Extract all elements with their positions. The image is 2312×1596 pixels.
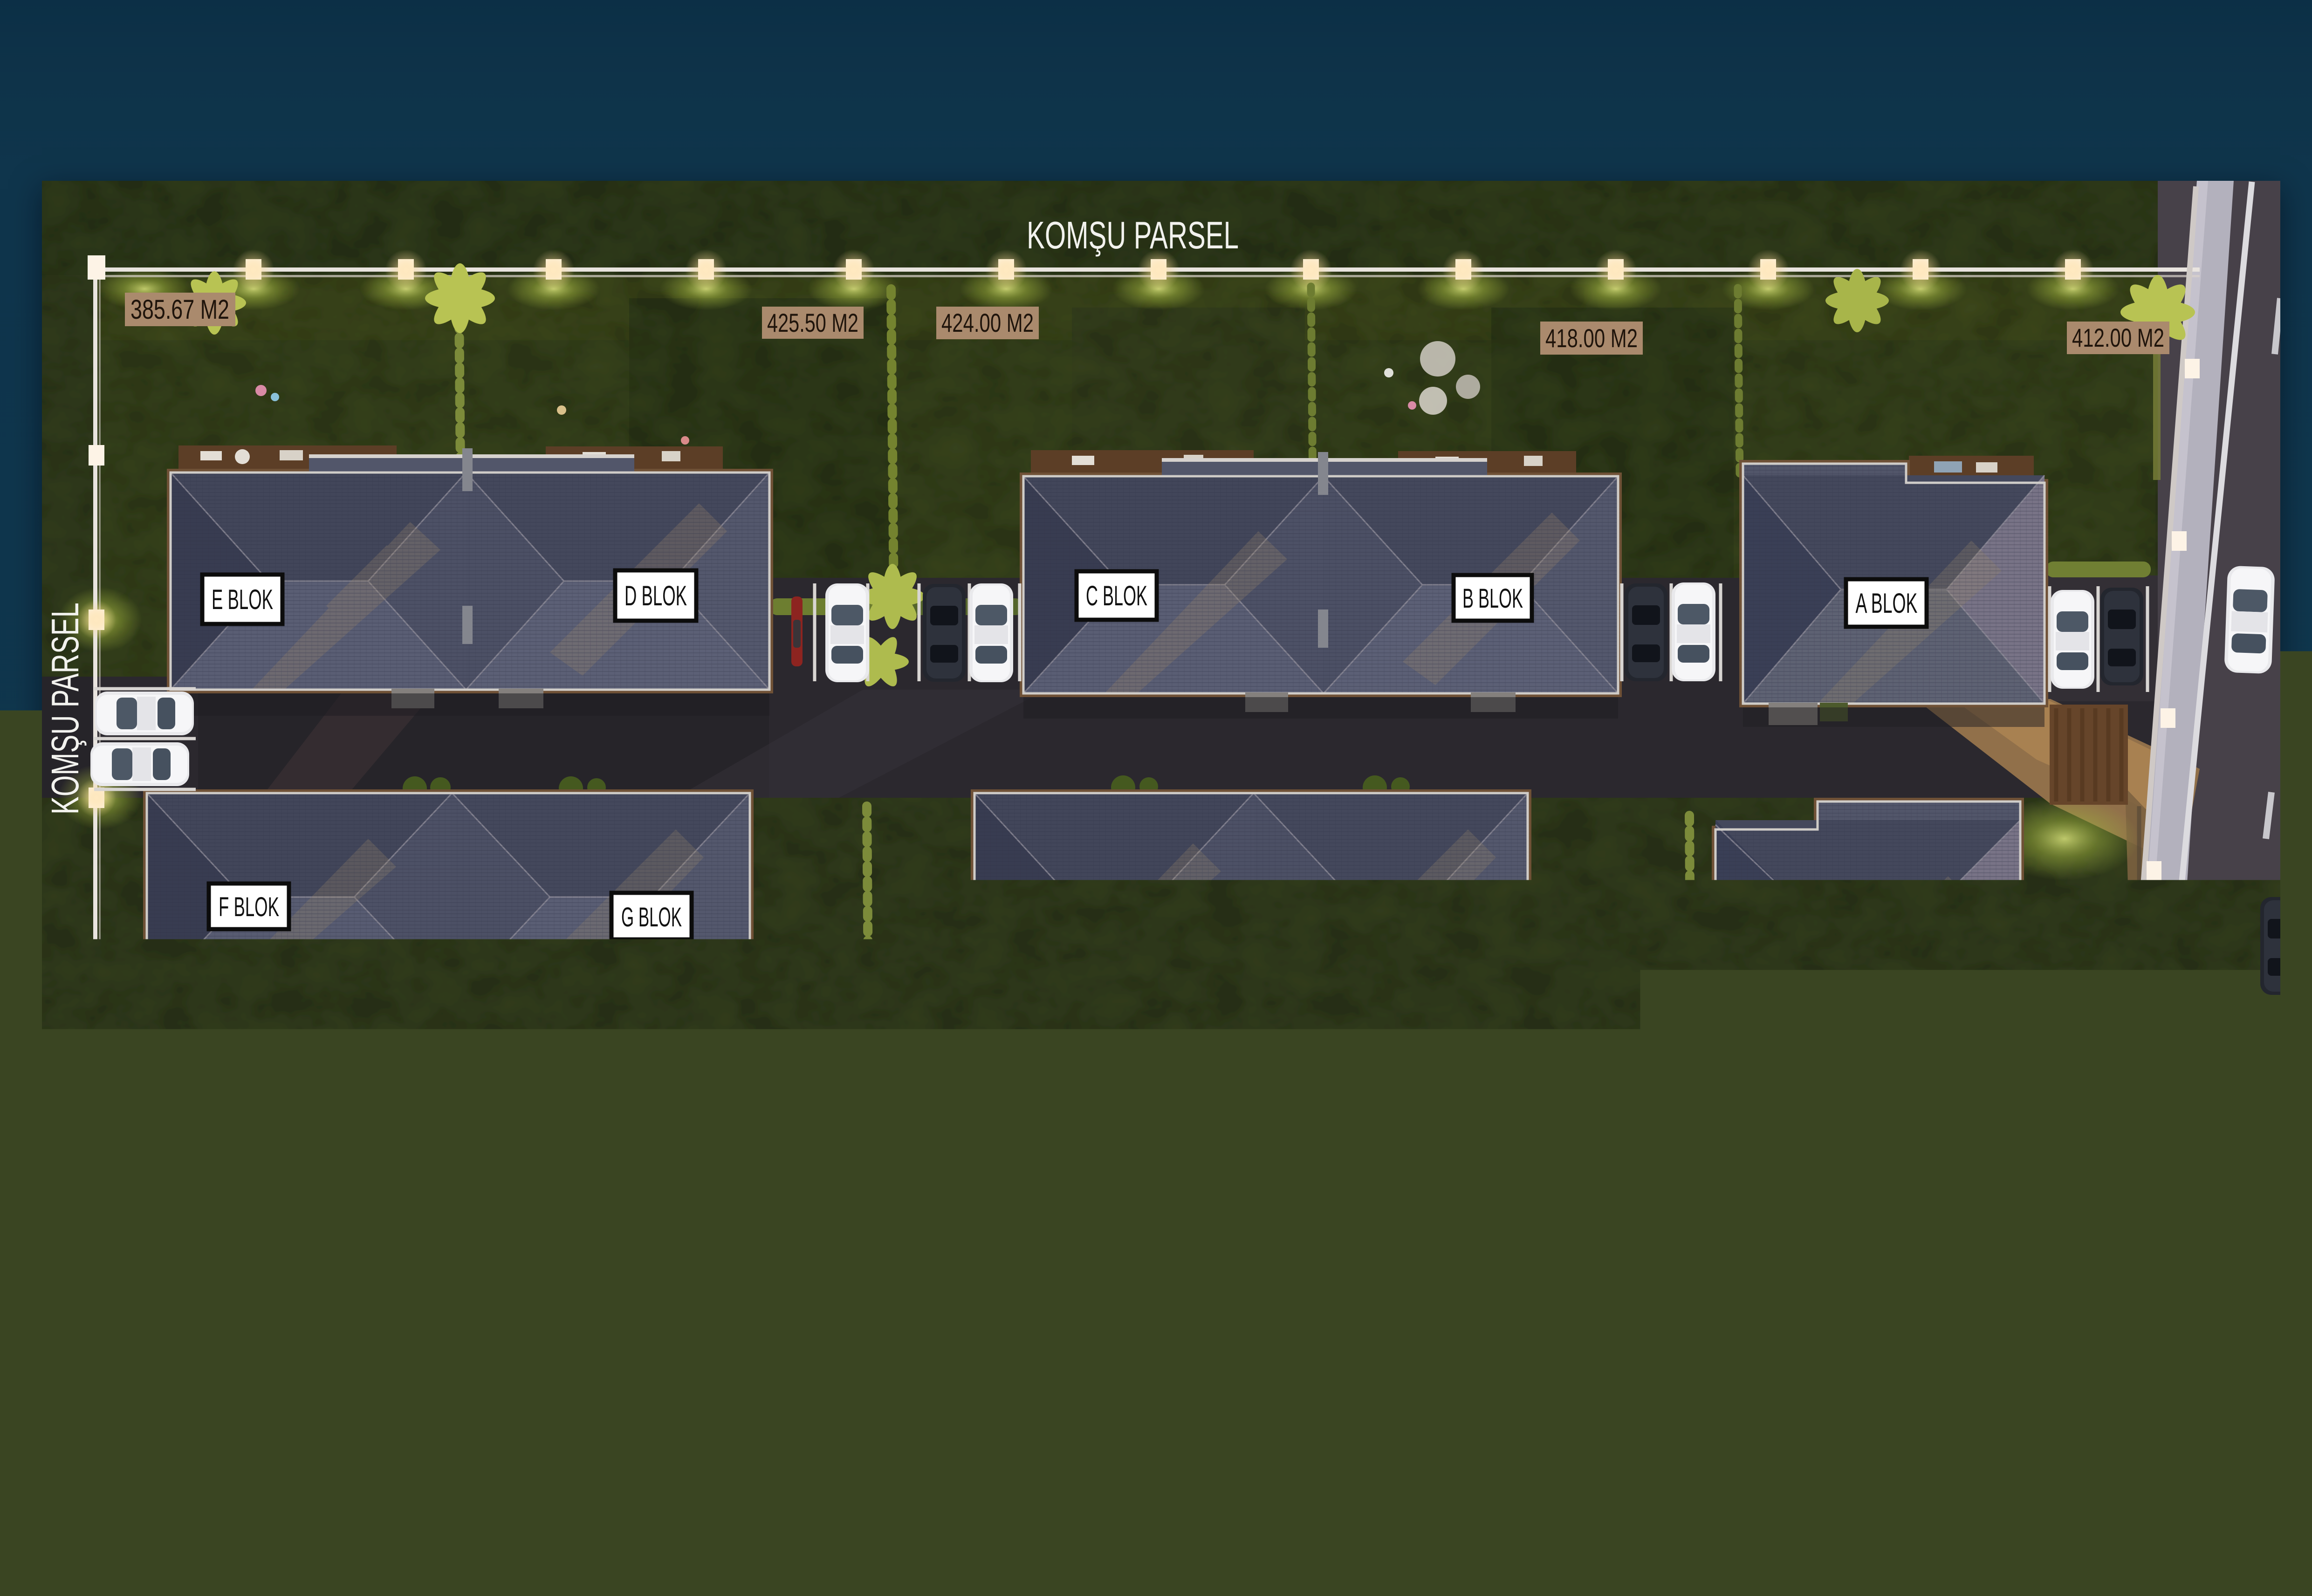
svg-text:C BLOK: C BLOK [1086,580,1147,611]
svg-text:KOMŞU PARSEL: KOMŞU PARSEL [1027,213,1239,257]
svg-text:E BLOK: E BLOK [212,584,273,615]
svg-text:385.67 M2: 385.67 M2 [130,295,229,325]
svg-text:350.00 M2: 350.00 M2 [136,1165,229,1195]
svg-text:407.50M2: 407.50M2 [736,1154,828,1183]
svg-text:B BLOK: B BLOK [1462,583,1523,614]
svg-text:KOMŞU PARSEL: KOMŞU PARSEL [43,603,87,815]
svg-text:374.50 M2: 374.50 M2 [1905,1145,1997,1175]
svg-text:424.00 M2: 424.00 M2 [941,308,1034,337]
svg-text:I BLOK: I BLOK [1419,892,1475,923]
svg-text:418.00 M2: 418.00 M2 [1545,323,1638,353]
svg-text:H BLOK: H BLOK [1065,892,1126,923]
svg-text:R: R [398,1421,405,1431]
svg-text:400.00 M2: 400.00 M2 [1165,1151,1256,1180]
svg-text:412.00 M2: 412.00 M2 [2072,323,2164,352]
svg-text:J BLOK: J BLOK [1805,893,1865,924]
svg-text:ARVE: ARVE [1866,1493,2048,1552]
svg-text:YAPI & MİMARLIK: YAPI & MİMARLIK [2061,1509,2307,1552]
svg-text:G BLOK: G BLOK [621,902,682,932]
svg-text:425.50 M2: 425.50 M2 [767,308,858,337]
svg-text:GRUP: GRUP [423,1439,517,1480]
svg-text:422.00 M2: 422.00 M2 [1347,1152,1444,1182]
svg-text:D BLOK: D BLOK [624,580,687,611]
svg-text:A BLOK: A BLOK [1856,588,1918,619]
svg-text:F BLOK: F BLOK [219,892,279,922]
